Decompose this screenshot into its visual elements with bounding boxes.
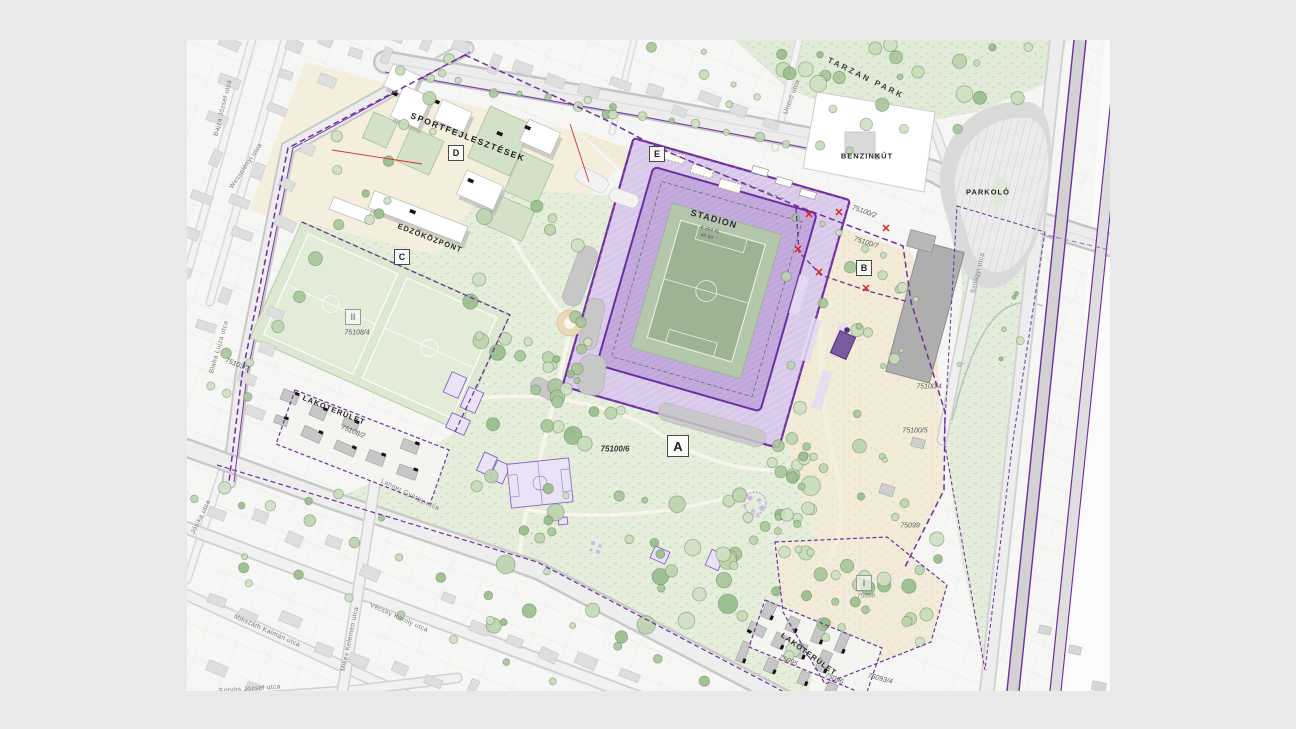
site-plan-page: SPORTFEJLESZTÉSEK EDZŐKÖZPONT STADION 8 … (0, 0, 1296, 729)
plan-graphics (187, 40, 1110, 691)
site-plan-canvas: SPORTFEJLESZTÉSEK EDZŐKÖZPONT STADION 8 … (187, 40, 1110, 691)
